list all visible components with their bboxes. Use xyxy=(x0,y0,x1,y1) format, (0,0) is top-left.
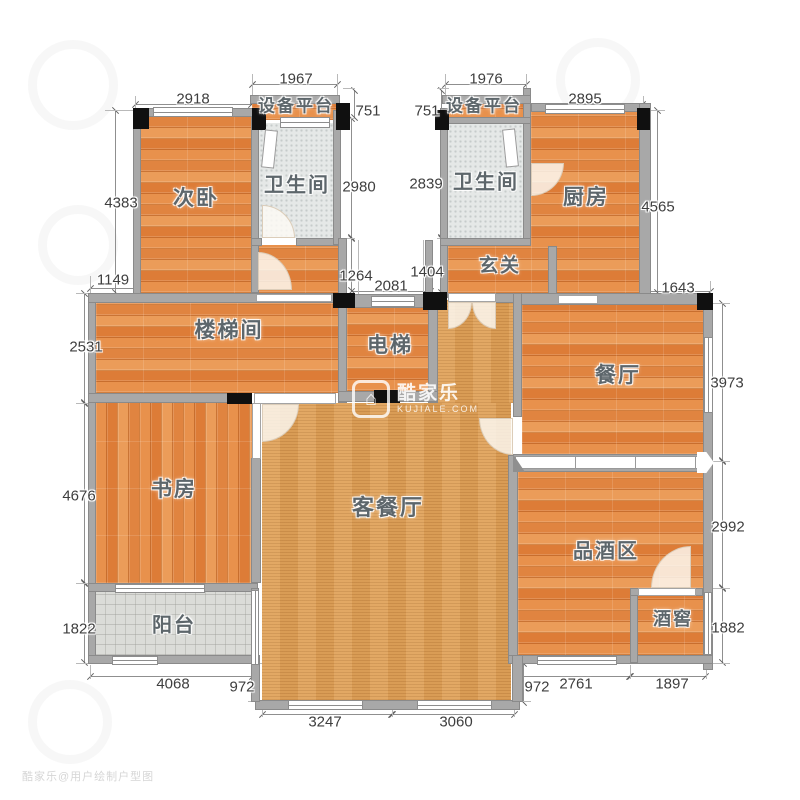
wall xyxy=(333,110,341,245)
wall xyxy=(548,246,557,296)
house-icon: ⌂ xyxy=(365,388,377,411)
dim-3973: 3973 xyxy=(710,375,743,392)
brand-name: 酷家乐 xyxy=(397,384,479,405)
entry-threshold xyxy=(448,293,496,302)
wall xyxy=(523,88,531,246)
wall xyxy=(338,238,347,403)
dim-2895: 2895 xyxy=(568,91,601,108)
dim-3247: 3247 xyxy=(308,714,341,731)
dim-1643: 1643 xyxy=(661,280,694,297)
door-opening xyxy=(256,294,332,302)
pass-through-window xyxy=(515,456,698,469)
dim-972-left: 972 xyxy=(229,679,254,696)
dim-1149: 1149 xyxy=(97,272,129,289)
window xyxy=(153,107,233,117)
wall xyxy=(251,458,261,583)
ext-line xyxy=(712,663,730,664)
dim-2531: 2531 xyxy=(69,339,102,356)
background-logo-watermark xyxy=(28,680,112,764)
wall xyxy=(512,655,523,702)
ext-line xyxy=(343,88,355,89)
ext-line xyxy=(135,96,136,108)
dim-1264: 1264 xyxy=(339,268,372,285)
corner-watermark: 酷家乐@用户绘制户型图 xyxy=(22,768,154,784)
dim-2992: 2992 xyxy=(711,519,744,536)
dim-2081: 2081 xyxy=(374,278,407,295)
wall xyxy=(508,455,518,663)
ext-line xyxy=(712,461,730,462)
label-elevator: 电梯 xyxy=(367,329,413,359)
room-living-dining-floor xyxy=(262,403,511,700)
ext-line xyxy=(712,303,730,304)
dim-1882: 1882 xyxy=(711,620,744,637)
door-opening xyxy=(252,403,261,459)
wall xyxy=(630,588,638,663)
kitchen-pass xyxy=(558,295,598,304)
ext-line xyxy=(105,110,135,111)
wall xyxy=(88,393,228,403)
label-wine-tasting: 品酒区 xyxy=(573,535,639,564)
dim-2839: 2839 xyxy=(409,176,442,193)
dim-2761: 2761 xyxy=(559,676,592,693)
ext-line xyxy=(712,588,730,589)
wall xyxy=(494,293,514,303)
window xyxy=(417,700,492,710)
brand-site: KUJIALE.COM xyxy=(397,404,479,414)
dim-4565: 4565 xyxy=(641,199,674,216)
dim-1822: 1822 xyxy=(62,621,95,638)
background-logo-watermark xyxy=(28,40,118,130)
dim-1976: 1976 xyxy=(469,71,502,88)
kujiale-watermark-text: 酷家乐 KUJIALE.COM xyxy=(397,384,479,415)
dim-4383: 4383 xyxy=(104,195,137,212)
label-balcony: 阳台 xyxy=(152,609,196,638)
pillar xyxy=(336,103,350,130)
dim-751-right: 751 xyxy=(414,103,439,120)
dim-3060: 3060 xyxy=(439,714,472,731)
kujiale-logo-icon: ⌂ xyxy=(352,380,390,418)
window xyxy=(371,296,415,307)
pillar xyxy=(133,108,149,129)
dim-2918: 2918 xyxy=(176,91,209,108)
pillar xyxy=(423,292,447,310)
window xyxy=(288,700,363,710)
cellar-glass xyxy=(638,588,696,596)
window xyxy=(112,656,158,665)
pillar xyxy=(227,393,252,404)
label-dining: 餐厅 xyxy=(595,359,641,389)
ext-line xyxy=(90,276,91,293)
window xyxy=(280,117,330,128)
label-stairwell: 楼梯间 xyxy=(195,314,264,344)
label-wine-cellar: 酒窖 xyxy=(653,605,693,631)
label-bath-left: 卫生间 xyxy=(264,169,330,198)
dim-1967: 1967 xyxy=(279,71,312,88)
wall xyxy=(440,117,531,124)
label-entry: 玄关 xyxy=(479,251,521,278)
ext-line xyxy=(630,665,631,679)
wall xyxy=(513,293,522,417)
dim-2980: 2980 xyxy=(342,179,375,196)
kujiale-watermark: ⌂ 酷家乐 KUJIALE.COM xyxy=(352,380,479,418)
wall xyxy=(440,238,531,246)
label-living-dining: 客餐厅 xyxy=(352,490,424,522)
label-equip-right: 设备平台 xyxy=(446,92,522,117)
dim-4068: 4068 xyxy=(156,676,189,693)
dim-972-right: 972 xyxy=(524,679,549,696)
label-study: 书房 xyxy=(151,473,197,503)
dim-751-left: 751 xyxy=(355,103,380,120)
ext-line xyxy=(710,281,711,293)
dim-1404: 1404 xyxy=(410,264,443,281)
pillar xyxy=(637,108,650,130)
window xyxy=(251,590,259,665)
dim-1897: 1897 xyxy=(655,676,688,693)
pillar xyxy=(333,293,355,308)
floorplan-canvas: 次卧 设备平台 卫生间 设备平台 卫生间 厨房 玄关 楼梯间 电梯 餐厅 书房 … xyxy=(0,0,800,800)
window xyxy=(537,656,617,665)
pillar xyxy=(697,293,713,310)
label-kitchen: 厨房 xyxy=(563,181,609,211)
label-bedroom2: 次卧 xyxy=(173,182,219,212)
dim-4676: 4676 xyxy=(62,488,95,505)
ext-line xyxy=(90,665,91,679)
door-opening xyxy=(254,393,336,404)
label-bath-right: 卫生间 xyxy=(453,166,519,195)
window xyxy=(115,584,205,593)
label-equip-left: 设备平台 xyxy=(258,92,334,117)
wall xyxy=(251,238,262,246)
ext-line xyxy=(437,88,449,89)
